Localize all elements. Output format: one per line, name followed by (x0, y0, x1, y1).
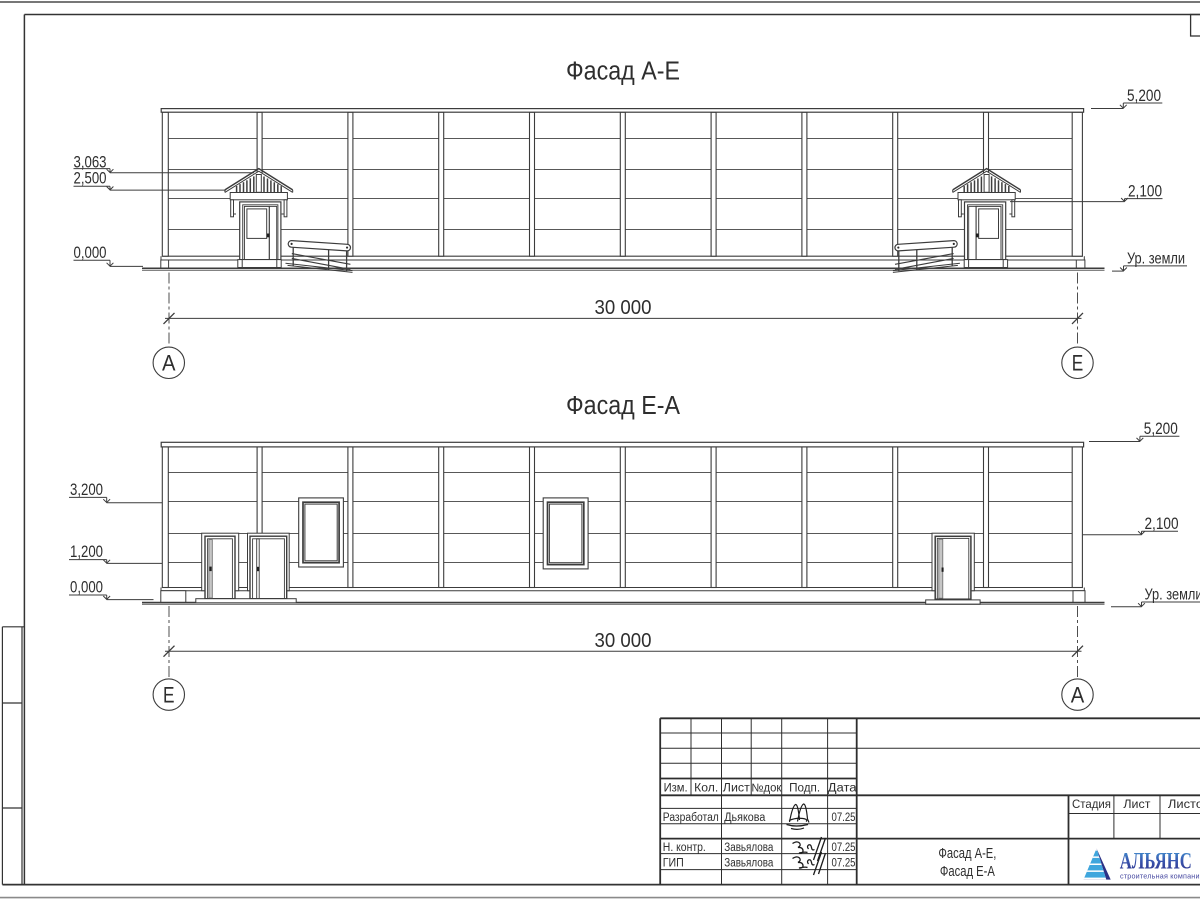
svg-text:Дата: Дата (828, 782, 858, 794)
svg-text:Стадия: Стадия (1072, 797, 1111, 811)
svg-text:Н. контр.: Н. контр. (663, 842, 706, 854)
svg-text:Фасад Е-А: Фасад Е-А (940, 864, 995, 880)
svg-text:Лист: Лист (723, 782, 751, 794)
svg-text:2,500: 2,500 (74, 169, 107, 188)
svg-text:0,000: 0,000 (74, 243, 107, 262)
svg-text:30 000: 30 000 (595, 630, 652, 652)
svg-text:Ур. земли: Ур. земли (1145, 587, 1200, 604)
svg-text:Фасад Е-А: Фасад Е-А (566, 392, 680, 420)
svg-text:А: А (1071, 682, 1085, 707)
svg-text:Лист: Лист (1123, 797, 1151, 811)
svg-text:Кол.: Кол. (694, 782, 718, 794)
svg-text:Е: Е (1072, 351, 1084, 376)
svg-text:07.25: 07.25 (832, 858, 856, 870)
svg-text:Дьякова: Дьякова (724, 812, 766, 824)
svg-text:Фасад А-Е,: Фасад А-Е, (938, 846, 996, 862)
svg-text:2,100: 2,100 (1145, 514, 1179, 533)
svg-text:07.25: 07.25 (832, 842, 856, 854)
svg-text:А: А (162, 351, 176, 376)
svg-text:Ур. земли: Ур. земли (1127, 251, 1185, 268)
svg-text:Е: Е (163, 682, 175, 707)
svg-text:30 000: 30 000 (595, 297, 652, 319)
svg-text:Завьялова: Завьялова (724, 858, 774, 870)
svg-text:07.25: 07.25 (832, 812, 856, 824)
svg-text:Разработал: Разработал (663, 812, 719, 824)
svg-text:Завьялова: Завьялова (724, 842, 774, 854)
svg-text:Фасад А-Е: Фасад А-Е (566, 58, 680, 86)
svg-text:5,200: 5,200 (1127, 86, 1161, 105)
svg-text:1,200: 1,200 (70, 542, 103, 561)
svg-text:ГИП: ГИП (663, 858, 684, 870)
svg-text:2,100: 2,100 (1128, 181, 1162, 200)
svg-text:№док: №док (751, 782, 782, 794)
svg-text:Листов: Листов (1168, 797, 1200, 811)
svg-text:АЛЬЯНС: АЛЬЯНС (1120, 849, 1192, 874)
svg-text:Подп.: Подп. (789, 782, 820, 794)
svg-text:Изм.: Изм. (664, 782, 688, 794)
svg-text:3,200: 3,200 (70, 480, 103, 499)
svg-text:строительная компания: строительная компания (1120, 871, 1200, 880)
svg-text:0,000: 0,000 (70, 578, 103, 597)
svg-text:5,200: 5,200 (1144, 419, 1178, 438)
